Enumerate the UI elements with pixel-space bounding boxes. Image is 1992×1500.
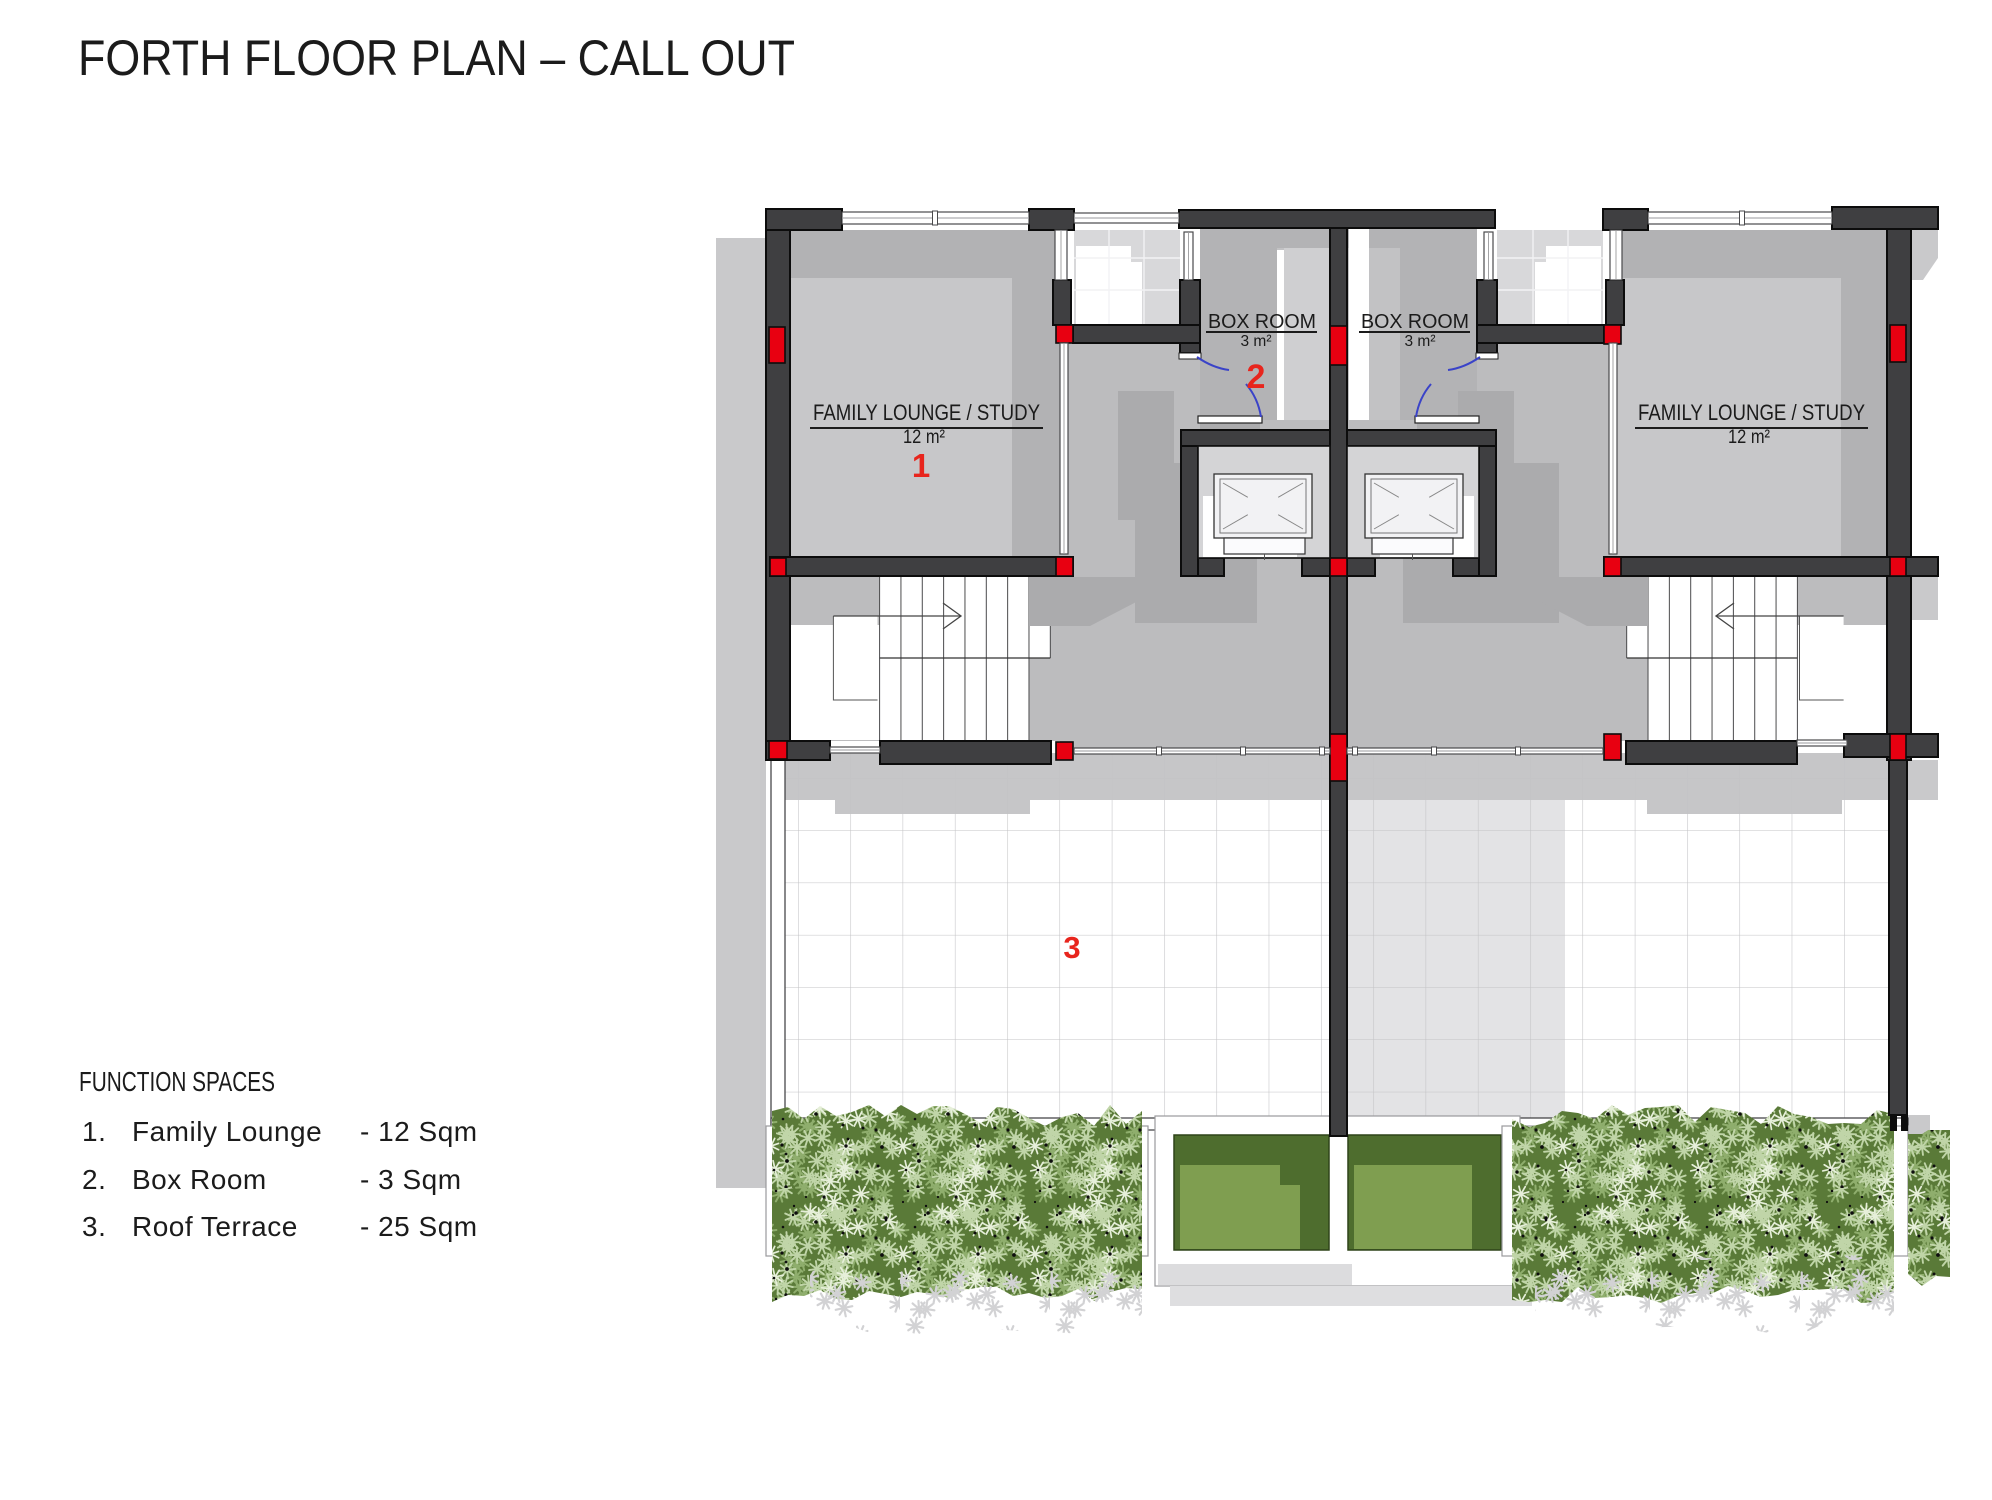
svg-text:- 25 Sqm: - 25 Sqm: [360, 1211, 478, 1242]
svg-text:3 m²: 3 m²: [1241, 333, 1273, 350]
svg-text:2.: 2.: [82, 1164, 106, 1195]
svg-text:3: 3: [1063, 930, 1080, 965]
svg-text:FAMILY LOUNGE / STUDY: FAMILY LOUNGE / STUDY: [813, 400, 1040, 425]
svg-text:Family Lounge: Family Lounge: [132, 1116, 322, 1147]
svg-text:FORTH FLOOR PLAN – CALL OUT: FORTH FLOOR PLAN – CALL OUT: [78, 30, 795, 86]
svg-text:- 12 Sqm: - 12 Sqm: [360, 1116, 478, 1147]
svg-text:12 m²: 12 m²: [903, 427, 945, 448]
svg-text:Roof Terrace: Roof Terrace: [132, 1211, 298, 1242]
svg-text:FUNCTION SPACES: FUNCTION SPACES: [79, 1066, 275, 1097]
svg-text:BOX ROOM: BOX ROOM: [1208, 311, 1316, 333]
svg-text:BOX ROOM: BOX ROOM: [1361, 311, 1469, 333]
svg-text:Box Room: Box Room: [132, 1164, 267, 1195]
svg-text:3 m²: 3 m²: [1405, 333, 1437, 350]
svg-text:1.: 1.: [82, 1116, 106, 1147]
svg-text:3.: 3.: [82, 1211, 106, 1242]
svg-text:FAMILY LOUNGE / STUDY: FAMILY LOUNGE / STUDY: [1638, 400, 1865, 425]
svg-text:12 m²: 12 m²: [1728, 427, 1770, 448]
svg-text:2: 2: [1247, 358, 1266, 396]
svg-text:1: 1: [912, 447, 930, 484]
svg-text:- 3 Sqm: - 3 Sqm: [360, 1164, 462, 1195]
